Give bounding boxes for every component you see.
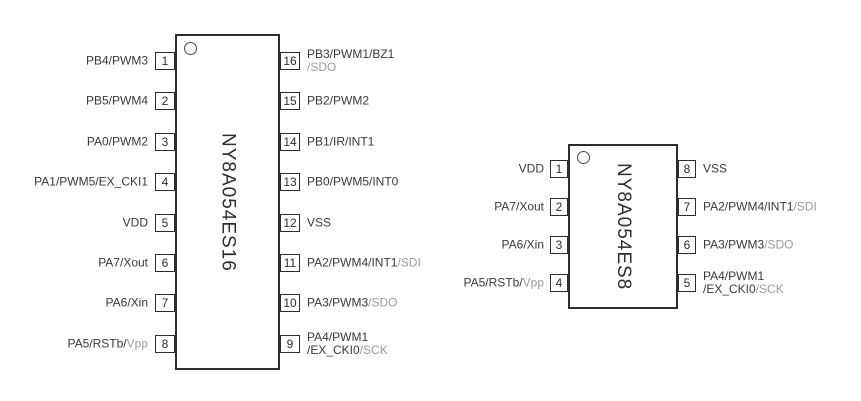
pin-label-segment: PA4/PWM1 xyxy=(307,330,368,344)
pin-label-line: PA5/RSTb/Vpp xyxy=(0,277,544,290)
pin-box: 6 xyxy=(155,254,175,272)
pin-number: 12 xyxy=(283,217,296,229)
pin-label-line: /EX_CKI0/SCK xyxy=(703,283,784,296)
pin-label: PA4/PWM1/EX_CKI0/SCK xyxy=(703,270,784,296)
pin-label: PB2/PWM2 xyxy=(307,95,369,108)
pin-label-line: PA7/Xout xyxy=(0,257,148,270)
pin-number: 10 xyxy=(283,297,296,309)
pin-label-segment: PA5/RSTb/ xyxy=(68,337,127,351)
pin-number: 13 xyxy=(283,176,296,188)
pin-box: 5 xyxy=(155,214,175,232)
pin-label-segment: PB0/PWM5/INT0 xyxy=(307,175,398,189)
pin-number: 8 xyxy=(684,163,691,175)
pin-number: 6 xyxy=(684,239,691,251)
pin-number: 7 xyxy=(684,201,691,213)
pin-label-segment: PA7/Xout xyxy=(494,200,544,214)
pin-box: 2 xyxy=(550,198,568,216)
pin-label-segment: PA2/PWM4/INT1 xyxy=(307,256,397,270)
pin-label: PA7/Xout xyxy=(0,201,544,214)
pin-label-segment: Vpp xyxy=(523,276,544,290)
pin-label-line: VDD xyxy=(0,217,148,230)
pin-label: PB0/PWM5/INT0 xyxy=(307,176,398,189)
pin-box: 3 xyxy=(550,236,568,254)
pin-number: 2 xyxy=(556,201,563,213)
pin-label: PA7/Xout xyxy=(0,257,148,270)
pin-label: VDD xyxy=(0,163,544,176)
pin-box: 1 xyxy=(155,52,175,70)
pin-label: PB4/PWM3 xyxy=(0,55,148,68)
pin-label-line: PB1/IR/INT1 xyxy=(307,136,374,149)
pin-box: 13 xyxy=(280,173,300,191)
pin-box: 8 xyxy=(155,335,175,353)
pin-label-line: PA5/RSTb/Vpp xyxy=(0,338,148,351)
pin-label-segment: /SCK xyxy=(360,343,388,357)
pin-label-segment: PB4/PWM3 xyxy=(86,54,148,68)
pin-label-segment: VSS xyxy=(703,162,727,176)
pin-label: PA4/PWM1/EX_CKI0/SCK xyxy=(307,331,388,357)
pin-label-segment: PA1/PWM5/EX_CKI1 xyxy=(34,175,148,189)
pin-label-segment: VDD xyxy=(123,216,148,230)
pin-label-line: PB5/PWM4 xyxy=(0,95,148,108)
pin-label-line: PA2/PWM4/INT1/SDI xyxy=(307,257,421,270)
pin-label-segment: /SDI xyxy=(397,256,420,270)
pin-label: PB3/PWM1/BZ1/SDO xyxy=(307,48,394,74)
pin-box: 8 xyxy=(678,160,696,178)
pin-label-segment: PA7/Xout xyxy=(98,256,148,270)
pin-number: 2 xyxy=(162,95,169,107)
pin-box: 4 xyxy=(550,274,568,292)
pin-number: 4 xyxy=(556,277,563,289)
pin-label-segment: /SDO xyxy=(307,60,336,74)
pin-label-segment: PA3/PWM3 xyxy=(307,296,368,310)
pin-label-line: VSS xyxy=(307,217,331,230)
pin-label: PB5/PWM4 xyxy=(0,95,148,108)
pin-label: PA6/Xin xyxy=(0,297,148,310)
pin-label-segment: PA0/PWM2 xyxy=(87,135,148,149)
pin-label-segment: PB3/PWM1/BZ1 xyxy=(307,47,394,61)
pin-box: 7 xyxy=(155,294,175,312)
pin-label-line: PA7/Xout xyxy=(0,201,544,214)
pin-number: 16 xyxy=(283,55,296,67)
pin-number: 5 xyxy=(162,217,169,229)
pin-number: 6 xyxy=(162,257,169,269)
pin-label-segment: /SDO xyxy=(764,238,793,252)
pin-label-segment: VSS xyxy=(307,216,331,230)
pin-box: 10 xyxy=(280,294,300,312)
pin-label-segment: PA6/Xin xyxy=(106,296,148,310)
pin-label-line: /SDO xyxy=(307,61,394,74)
pin-label: PA5/RSTb/Vpp xyxy=(0,338,148,351)
pin-label-segment: PA3/PWM3 xyxy=(703,238,764,252)
pin-number: 14 xyxy=(283,136,296,148)
pin-label-line: /EX_CKI0/SCK xyxy=(307,344,388,357)
pin-label-segment: /SDI xyxy=(793,200,816,214)
pin-label-segment: PB2/PWM2 xyxy=(307,94,369,108)
pin-number: 9 xyxy=(287,338,294,350)
pin1-indicator-icon xyxy=(577,151,590,164)
pinout-diagram: NY8A054ES16 1PB4/PWM32PB5/PWM43PA0/PWM24… xyxy=(0,0,861,401)
pin-label-segment: PA5/RSTb/ xyxy=(464,276,523,290)
pin-number: 3 xyxy=(556,239,563,251)
pin-number: 1 xyxy=(556,163,563,175)
pin-box: 11 xyxy=(280,254,300,272)
pin-label-line: PA6/Xin xyxy=(0,239,544,252)
pin-box: 9 xyxy=(280,335,300,353)
pin-label-line: PA1/PWM5/EX_CKI1 xyxy=(0,176,148,189)
pin-label-segment: VDD xyxy=(519,162,544,176)
pin-label-segment: Vpp xyxy=(127,337,148,351)
pin-number: 11 xyxy=(284,257,296,269)
pin-label: VSS xyxy=(703,163,727,176)
pin-box: 14 xyxy=(280,133,300,151)
pin1-indicator-icon xyxy=(184,42,197,55)
pin-label: PA1/PWM5/EX_CKI1 xyxy=(0,176,148,189)
pin-label-segment: PB5/PWM4 xyxy=(86,94,148,108)
pin-number: 5 xyxy=(684,277,691,289)
pin-label-line: PB0/PWM5/INT0 xyxy=(307,176,398,189)
pin-number: 8 xyxy=(162,338,169,350)
pin-label: PA2/PWM4/INT1/SDI xyxy=(307,257,421,270)
pin-label-line: PA3/PWM3/SDO xyxy=(703,239,793,252)
pin-number: 7 xyxy=(162,297,169,309)
pin-label: PA0/PWM2 xyxy=(0,136,148,149)
pin-box: 7 xyxy=(678,198,696,216)
pin-label: VDD xyxy=(0,217,148,230)
chip-body xyxy=(568,144,678,309)
pin-label: PA3/PWM3/SDO xyxy=(307,297,397,310)
pin-label-line: PA0/PWM2 xyxy=(0,136,148,149)
pin-box: 15 xyxy=(280,92,300,110)
pin-label-segment: PA4/PWM1 xyxy=(703,269,764,283)
pin-label-line: PB2/PWM2 xyxy=(307,95,369,108)
pin-box: 3 xyxy=(155,133,175,151)
pin-label: PA2/PWM4/INT1/SDI xyxy=(703,201,817,214)
pin-label-segment: PA2/PWM4/INT1 xyxy=(703,200,793,214)
pin-label-segment: PA6/Xin xyxy=(502,238,544,252)
pin-number: 1 xyxy=(162,55,169,67)
pin-label-segment: /EX_CKI0 xyxy=(703,282,756,296)
pin-label-segment: /SCK xyxy=(756,282,784,296)
pin-box: 4 xyxy=(155,173,175,191)
pin-box: 6 xyxy=(678,236,696,254)
pin-label: PA6/Xin xyxy=(0,239,544,252)
pin-label-segment: PB1/IR/INT1 xyxy=(307,135,374,149)
pin-label: PA3/PWM3/SDO xyxy=(703,239,793,252)
pin-box: 2 xyxy=(155,92,175,110)
pin-label-line: PA2/PWM4/INT1/SDI xyxy=(703,201,817,214)
pin-label-line: VDD xyxy=(0,163,544,176)
pin-box: 1 xyxy=(550,160,568,178)
pin-label: VSS xyxy=(307,217,331,230)
pin-label: PB1/IR/INT1 xyxy=(307,136,374,149)
pin-label: PA5/RSTb/Vpp xyxy=(0,277,544,290)
pin-box: 12 xyxy=(280,214,300,232)
pin-box: 5 xyxy=(678,274,696,292)
pin-label-line: VSS xyxy=(703,163,727,176)
pin-label-line: PA6/Xin xyxy=(0,297,148,310)
pin-box: 16 xyxy=(280,52,300,70)
pin-number: 3 xyxy=(162,136,169,148)
pin-number: 15 xyxy=(283,95,296,107)
pin-number: 4 xyxy=(162,176,169,188)
pin-label-segment: /SDO xyxy=(368,296,397,310)
pin-label-line: PB4/PWM3 xyxy=(0,55,148,68)
pin-label-segment: /EX_CKI0 xyxy=(307,343,360,357)
pin-label-line: PA3/PWM3/SDO xyxy=(307,297,397,310)
